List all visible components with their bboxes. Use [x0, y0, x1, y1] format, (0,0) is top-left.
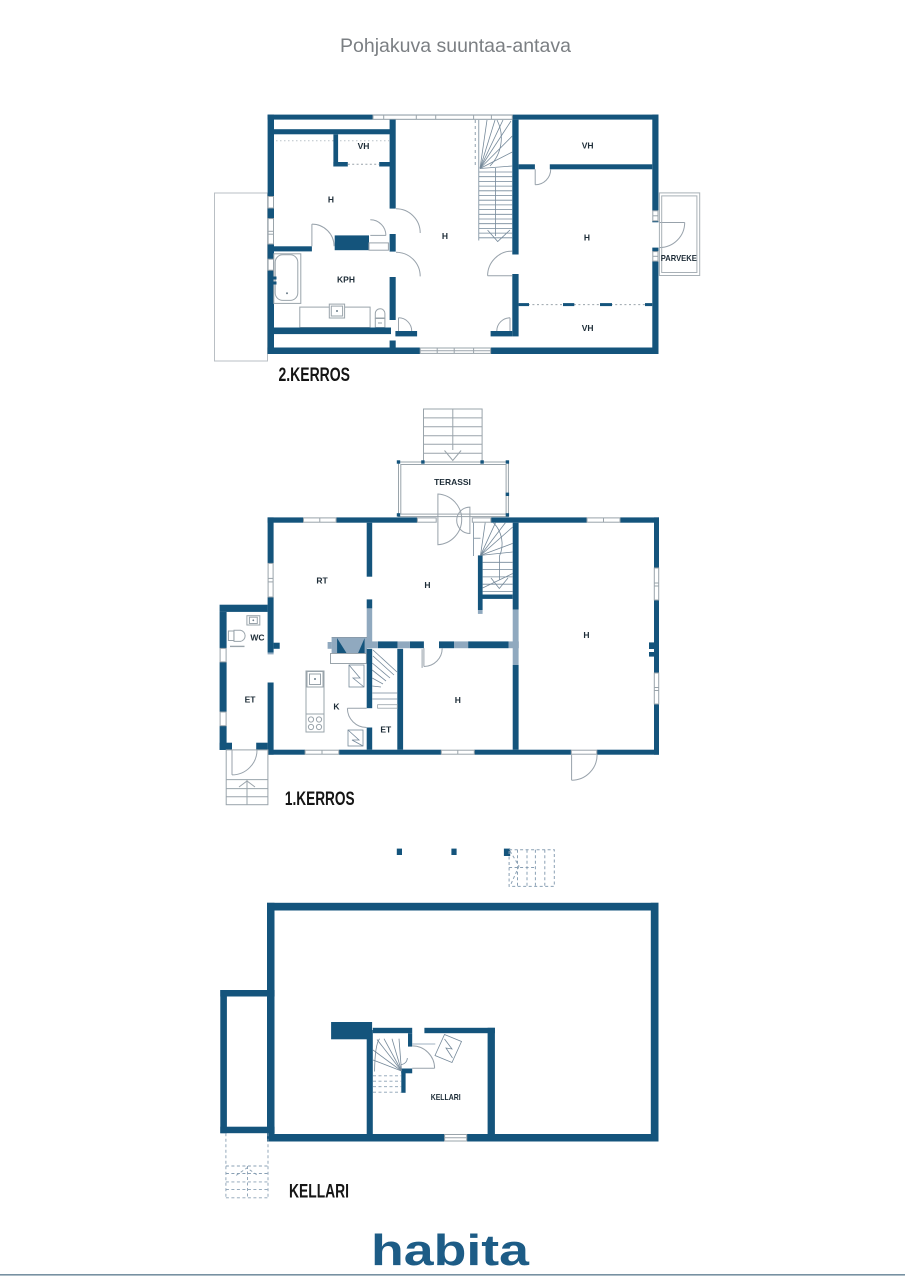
svg-text:Pohjakuva suuntaa-antava: Pohjakuva suuntaa-antava: [340, 35, 571, 57]
svg-text:2.KERROS: 2.KERROS: [279, 364, 351, 386]
svg-text:KPH: KPH: [337, 274, 355, 284]
svg-text:habita: habita: [371, 1226, 530, 1275]
svg-text:RT: RT: [316, 575, 328, 585]
svg-text:1.KERROS: 1.KERROS: [285, 788, 355, 810]
svg-text:VH: VH: [358, 141, 370, 151]
svg-text:KELLARI: KELLARI: [289, 1181, 349, 1203]
svg-text:VH: VH: [582, 323, 594, 333]
svg-text:WC: WC: [250, 632, 264, 642]
svg-text:VH: VH: [582, 140, 594, 150]
svg-text:ET: ET: [380, 724, 392, 734]
svg-text:KELLARI: KELLARI: [431, 1092, 461, 1102]
svg-text:H: H: [442, 231, 448, 241]
svg-text:H: H: [583, 630, 589, 640]
svg-text:H: H: [424, 580, 430, 590]
svg-text:H: H: [584, 232, 590, 242]
svg-text:H: H: [455, 695, 461, 705]
svg-text:PARVEKE: PARVEKE: [661, 253, 697, 263]
svg-text:TERASSI: TERASSI: [434, 477, 471, 487]
svg-text:ET: ET: [245, 694, 257, 704]
svg-text:H: H: [328, 195, 334, 205]
svg-text:K: K: [333, 701, 340, 711]
